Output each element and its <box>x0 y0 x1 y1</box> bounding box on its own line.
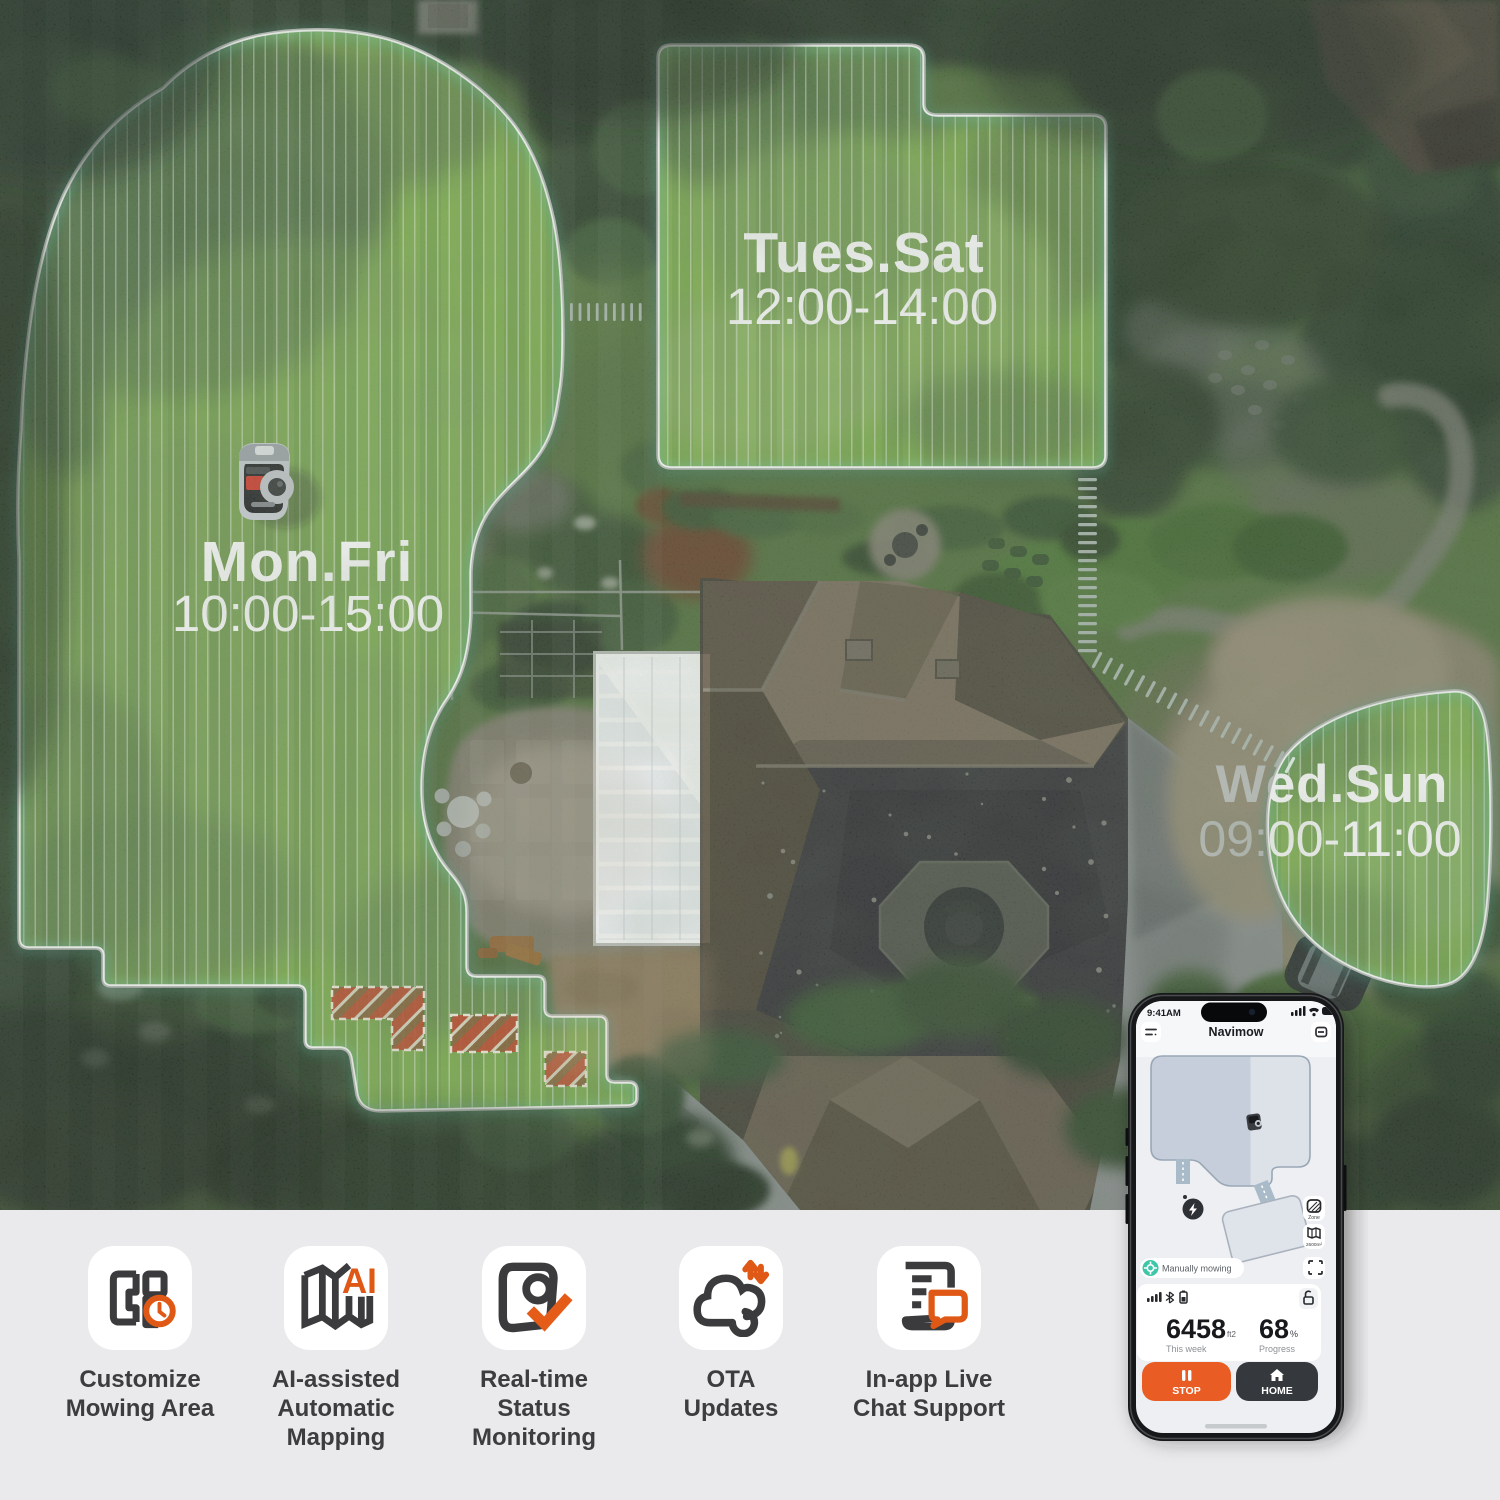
svg-text:STOP: STOP <box>1172 1385 1200 1397</box>
svg-text:AI: AI <box>342 1262 375 1301</box>
svg-text:HOME: HOME <box>1261 1385 1293 1397</box>
svg-text:6458: 6458 <box>1166 1314 1226 1344</box>
svg-text:Progress: Progress <box>1259 1344 1296 1354</box>
svg-text:%: % <box>1290 1329 1298 1339</box>
svg-text:Navimow: Navimow <box>1209 1025 1264 1039</box>
svg-text:9:41AM: 9:41AM <box>1147 1008 1181 1019</box>
svg-text:Manually mowing: Manually mowing <box>1162 1264 1232 1274</box>
svg-text:68: 68 <box>1259 1314 1289 1344</box>
svg-text:ft2: ft2 <box>1227 1330 1236 1339</box>
svg-text:2600m²: 2600m² <box>1306 1242 1323 1248</box>
svg-text:This week: This week <box>1166 1344 1207 1354</box>
svg-text:Zone: Zone <box>1308 1215 1320 1221</box>
